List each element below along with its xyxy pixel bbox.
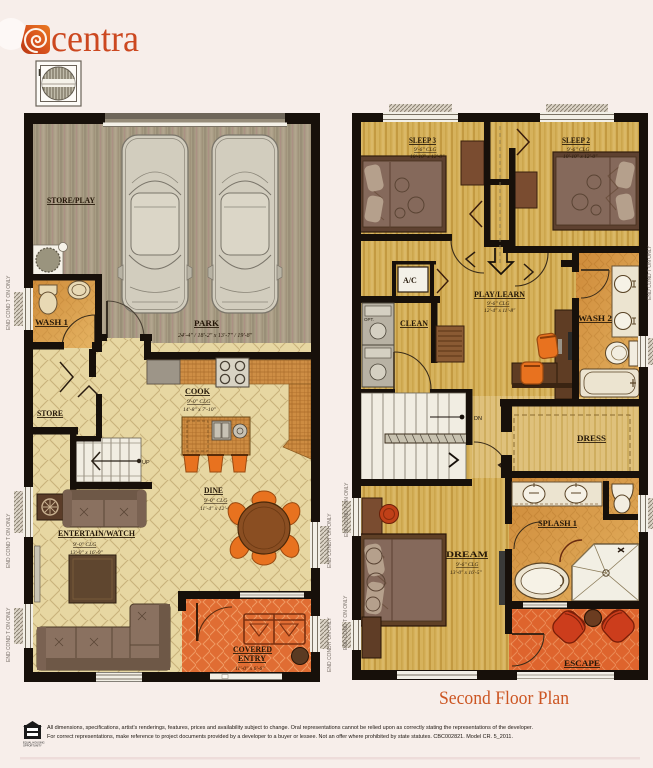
svg-text:9'-0" CLG: 9'-0" CLG (73, 542, 96, 548)
svg-text:UP: UP (142, 460, 150, 466)
svg-text:ENTERTAIN/WATCH: ENTERTAIN/WATCH (58, 528, 135, 538)
svg-text:COOK: COOK (185, 386, 210, 396)
svg-text:DINE: DINE (204, 485, 223, 495)
svg-text:END COND T ON ONLY: END COND T ON ONLY (6, 513, 12, 568)
svg-text:WASH 2: WASH 2 (578, 313, 612, 323)
svg-text:STORE/PLAY: STORE/PLAY (47, 195, 95, 205)
svg-text:9'-6" CLG: 9'-6" CLG (414, 147, 437, 153)
svg-text:ENTRY: ENTRY (238, 653, 266, 663)
svg-text:DREAM: DREAM (446, 549, 488, 559)
svg-text:DN: DN (474, 416, 482, 422)
svg-text:All dimensions, specifications: All dimensions, specifications, artist's… (47, 725, 533, 731)
svg-text:9'-6" CLG: 9'-6" CLG (487, 301, 510, 307)
svg-text:PLAY/LEARN: PLAY/LEARN (474, 289, 526, 299)
svg-text:END COND T ON ONLY: END COND T ON ONLY (344, 482, 350, 537)
svg-text:12'-4" x 11'-8": 12'-4" x 11'-8" (484, 308, 516, 314)
svg-text:END COND T ON ONLY: END COND T ON ONLY (647, 245, 653, 300)
svg-text:SLEEP 3: SLEEP 3 (409, 135, 436, 145)
svg-text:END COND T ON ONLY: END COND T ON ONLY (6, 275, 12, 330)
svg-text:SPLASH 1: SPLASH 1 (538, 518, 577, 528)
svg-text:9'-6" CLG: 9'-6" CLG (456, 562, 479, 568)
svg-text:ESCAPE: ESCAPE (564, 658, 600, 668)
svg-text:STORE: STORE (37, 408, 63, 418)
svg-text:13'-0" x 16'-5": 13'-0" x 16'-5" (450, 570, 482, 576)
svg-text:A/C: A/C (403, 276, 417, 285)
svg-text:END CONDIT ON ONLY: END CONDIT ON ONLY (327, 513, 333, 568)
svg-text:END CONDIT ON ONLY: END CONDIT ON ONLY (327, 617, 333, 672)
svg-text:CLEAN: CLEAN (400, 318, 429, 328)
svg-text:END COND T ON ONLY: END COND T ON ONLY (6, 607, 12, 662)
svg-text:OPT.: OPT. (364, 317, 374, 322)
svg-text:centra: centra (51, 18, 139, 60)
svg-text:OPPORTUNITY: OPPORTUNITY (23, 744, 42, 748)
svg-text:PARK: PARK (194, 318, 219, 328)
svg-text:Second Floor Plan: Second Floor Plan (439, 688, 569, 709)
svg-text:DRESS: DRESS (577, 433, 606, 443)
svg-text:9'-0" CLG: 9'-0" CLG (204, 498, 227, 504)
svg-text:9'-0" CLG: 9'-0" CLG (187, 399, 210, 405)
svg-text:9'-6" CLG: 9'-6" CLG (567, 147, 590, 153)
svg-text:24'-4" / 18'-2" x 13'-7" / 19': 24'-4" / 18'-2" x 13'-7" / 19'-8" (178, 332, 253, 339)
svg-text:WASH 1: WASH 1 (35, 317, 68, 327)
svg-text:For correct representations, m: For correct representations, make refere… (47, 734, 513, 740)
svg-text:10'-10" x 12'-0": 10'-10" x 12'-0" (410, 154, 445, 160)
svg-text:10'-10" x 12'-0": 10'-10" x 12'-0" (563, 154, 598, 160)
svg-text:SLEEP 2: SLEEP 2 (562, 135, 590, 145)
svg-text:11'-0" x 6'-6": 11'-0" x 6'-6" (235, 666, 265, 672)
svg-text:14'-8" x 7'-10": 14'-8" x 7'-10" (183, 407, 217, 413)
svg-text:END COND T ON ONLY: END COND T ON ONLY (343, 595, 349, 650)
